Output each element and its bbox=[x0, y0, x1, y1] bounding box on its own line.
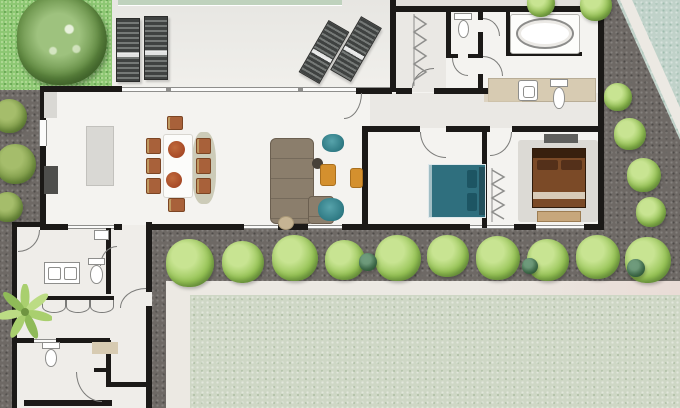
dining-chair bbox=[146, 178, 161, 194]
path-edge-left bbox=[166, 281, 190, 408]
path-edge-top bbox=[166, 281, 680, 295]
toilet bbox=[42, 342, 60, 349]
window bbox=[536, 225, 584, 229]
wash-basin bbox=[94, 230, 109, 240]
lawn-panel bbox=[190, 295, 680, 408]
window bbox=[244, 225, 278, 229]
sun-lounger bbox=[144, 16, 168, 80]
dining-chair bbox=[168, 198, 185, 212]
dining-chair bbox=[146, 158, 161, 174]
closet-door-swing bbox=[90, 300, 114, 313]
armchair-teal bbox=[322, 134, 344, 152]
pillow bbox=[561, 160, 582, 170]
corridor-mat bbox=[484, 94, 522, 102]
sliding-glass-wall bbox=[122, 87, 392, 92]
dining-chair bbox=[196, 138, 211, 154]
foot-bench bbox=[537, 211, 581, 222]
pillow bbox=[467, 193, 477, 211]
toilet bbox=[550, 79, 568, 87]
headboard bbox=[479, 167, 485, 215]
dining-chair bbox=[196, 178, 211, 194]
wash-basin bbox=[518, 80, 538, 101]
wall-segment bbox=[146, 224, 244, 230]
headboard bbox=[533, 149, 585, 158]
toilet-bowl bbox=[553, 87, 565, 109]
kitchen-counter bbox=[44, 92, 57, 118]
bed-brown bbox=[532, 148, 586, 208]
toilet-bowl bbox=[45, 349, 57, 367]
window bbox=[308, 225, 342, 229]
wall-segment bbox=[598, 6, 604, 228]
wall-segment bbox=[396, 6, 604, 12]
wall-segment bbox=[434, 88, 480, 94]
slider-tick bbox=[298, 88, 303, 91]
wall-segment bbox=[146, 222, 152, 292]
armchair-orange bbox=[350, 168, 363, 188]
wall-segment bbox=[396, 88, 412, 94]
wall-segment bbox=[514, 224, 536, 230]
hanger-rail-icon bbox=[490, 168, 506, 222]
bathtub bbox=[516, 18, 574, 49]
wall-segment bbox=[584, 224, 604, 230]
sun-lounger bbox=[116, 18, 140, 82]
palm-plant bbox=[0, 284, 52, 340]
dining-chair bbox=[167, 116, 183, 130]
table-bowl bbox=[166, 172, 182, 188]
armchair-teal bbox=[318, 198, 344, 221]
wall-segment bbox=[446, 12, 451, 56]
wall-segment bbox=[512, 126, 604, 132]
kitchen-island bbox=[86, 126, 114, 186]
wardrobe bbox=[490, 168, 506, 222]
wall-segment bbox=[106, 382, 152, 387]
wardrobe bbox=[412, 14, 428, 86]
armchair-orange bbox=[320, 164, 336, 186]
ottoman bbox=[278, 216, 294, 230]
tree bbox=[17, 0, 107, 85]
gravel-path-lawn-edge bbox=[150, 278, 166, 408]
pillow bbox=[467, 170, 477, 188]
floor-plan bbox=[0, 0, 680, 408]
wall-segment bbox=[12, 222, 42, 227]
toilet bbox=[454, 13, 472, 20]
sink bbox=[64, 267, 77, 280]
kitchen-appliance bbox=[44, 166, 58, 194]
dining-chair bbox=[146, 138, 161, 154]
window bbox=[470, 225, 514, 229]
slider-tick bbox=[166, 88, 171, 91]
blanket-fold bbox=[533, 192, 585, 199]
table-bowl bbox=[168, 141, 185, 158]
tv-console bbox=[544, 134, 578, 143]
gravel-path-bottom bbox=[150, 228, 680, 285]
wall-segment bbox=[478, 74, 483, 90]
window bbox=[39, 120, 47, 146]
shelf bbox=[92, 342, 118, 354]
double-vanity bbox=[44, 262, 80, 284]
pool-edge-strip bbox=[118, 0, 342, 6]
toilet-bowl bbox=[90, 265, 103, 284]
closet-door-swing bbox=[66, 300, 90, 313]
pillow bbox=[537, 160, 558, 170]
basin-bowl bbox=[523, 86, 535, 98]
bed-teal bbox=[428, 164, 486, 218]
toilet-bowl bbox=[458, 20, 469, 38]
wall-segment bbox=[368, 126, 420, 132]
wall-segment bbox=[390, 0, 396, 92]
sink bbox=[48, 267, 61, 280]
dining-chair bbox=[196, 158, 211, 174]
toilet bbox=[88, 258, 105, 265]
wall-segment bbox=[114, 224, 122, 230]
wall-segment bbox=[146, 306, 152, 408]
wall-segment bbox=[468, 54, 482, 58]
hanger-rail-icon bbox=[412, 14, 428, 86]
